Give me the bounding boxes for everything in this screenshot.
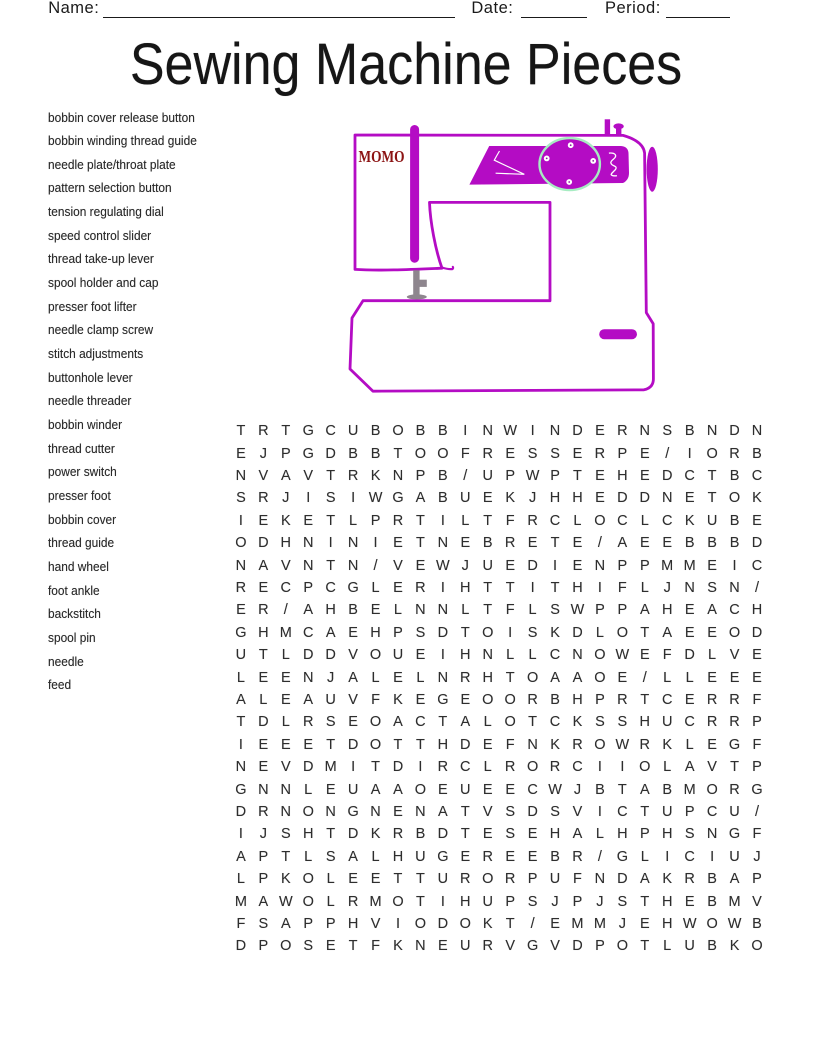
svg-text:MOMO: MOMO [359,147,405,166]
